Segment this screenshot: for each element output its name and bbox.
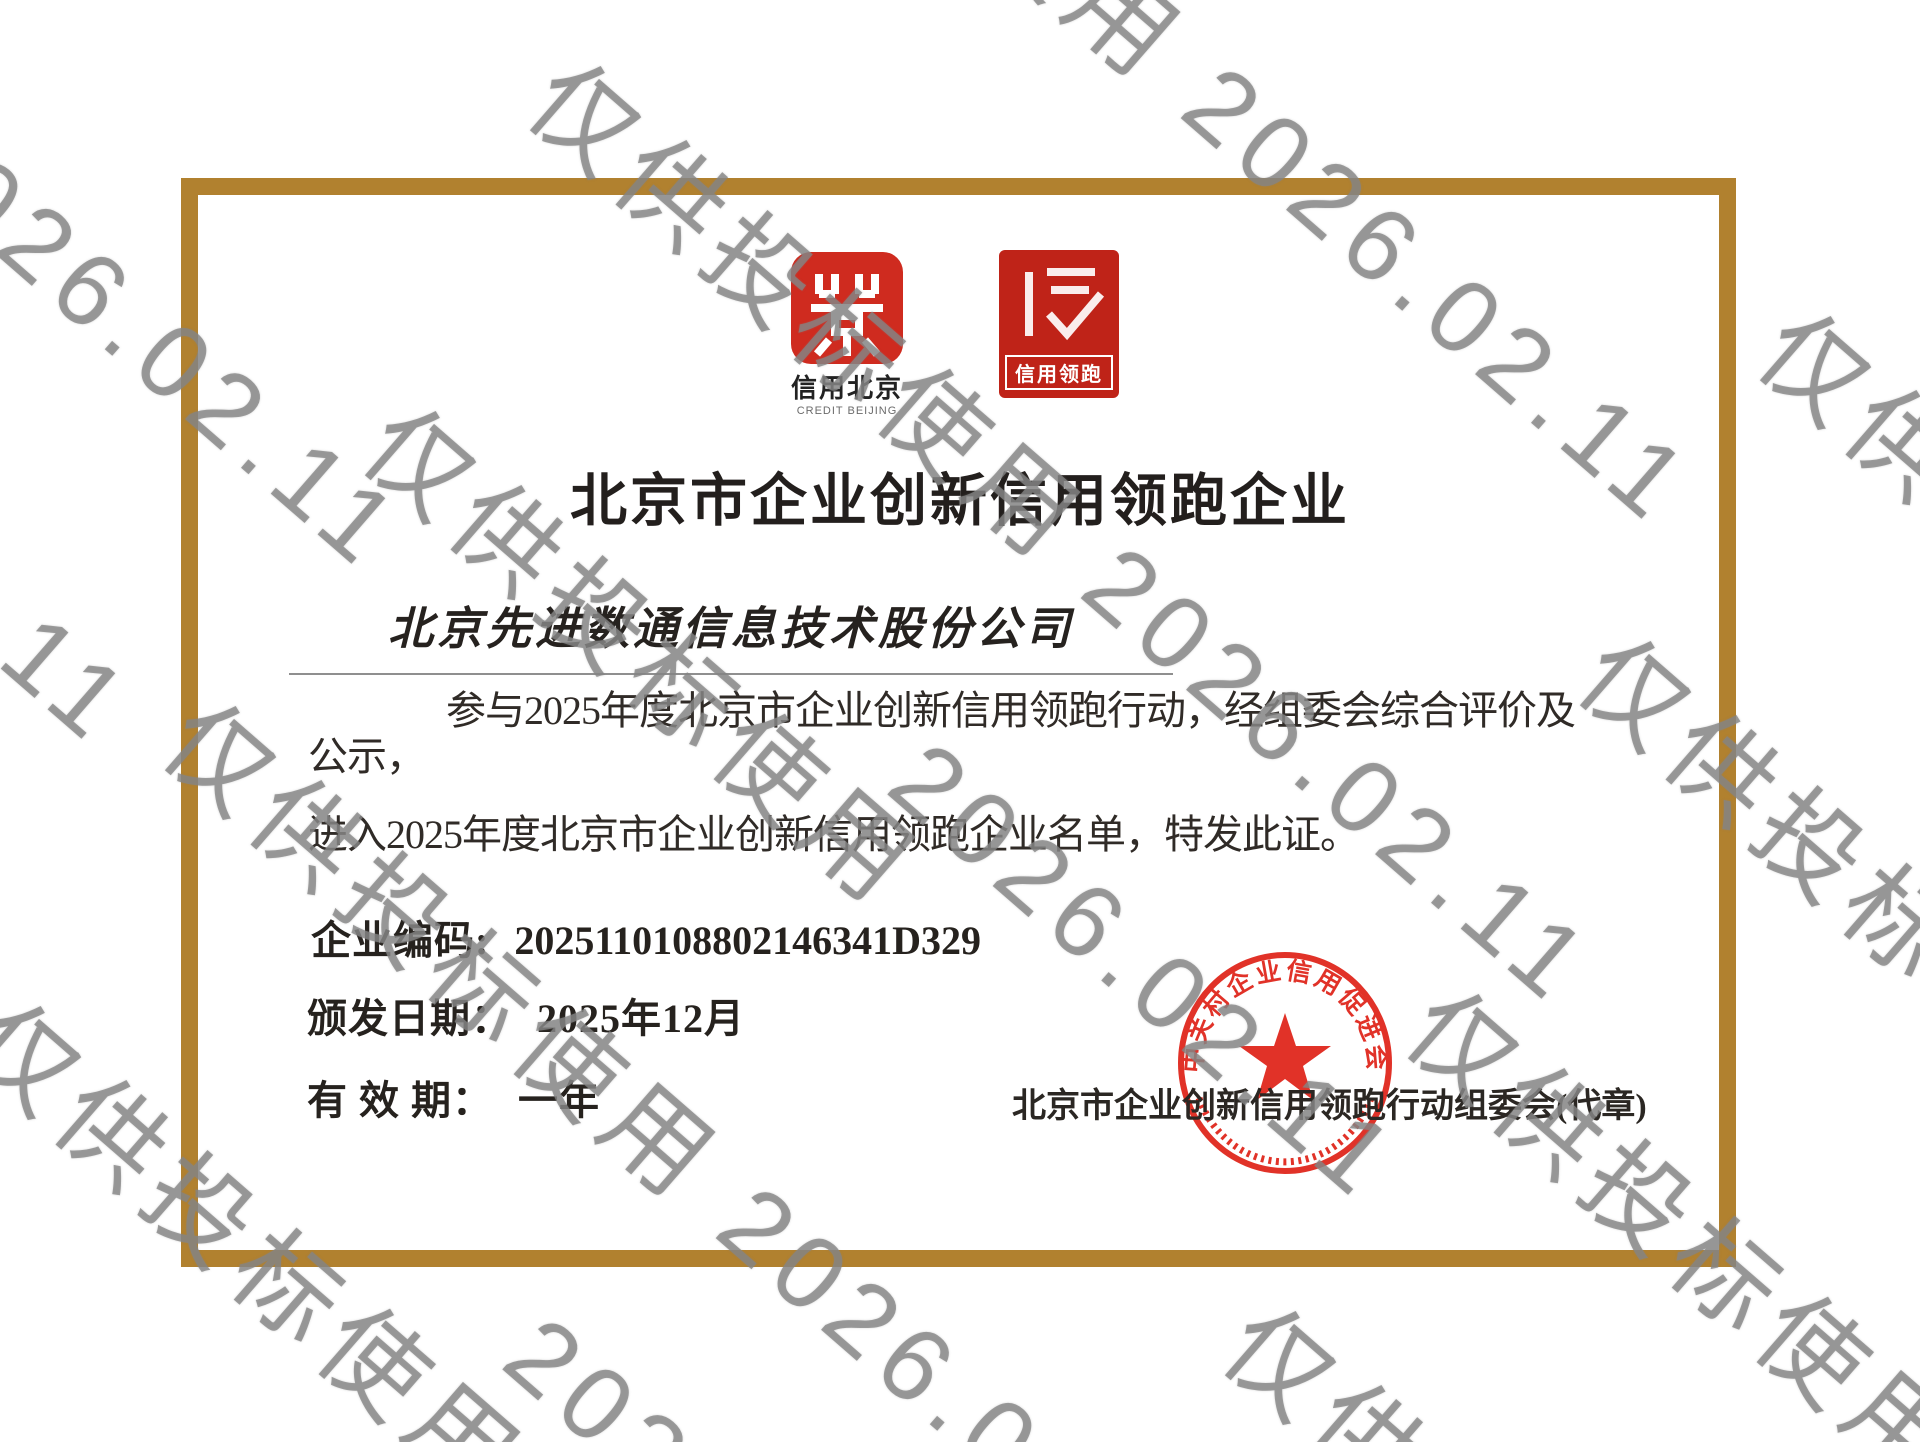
credit-leader-logo: 信用领跑 — [999, 250, 1119, 398]
enterprise-code-label: 企业编码: — [311, 918, 489, 963]
body-line-2: 进入2025年度北京市企业创新信用领跑企业名单，特发此证。 — [308, 812, 1608, 858]
certificate-page: 信用北京 CREDIT BEIJING 信用领跑 北京市企业创新信用领跑企业 北… — [0, 0, 1920, 1442]
company-name: 北京先进数通信息技术股份公司 — [388, 604, 1074, 654]
watermark-text: 仅供投标使用 2026.02.11 — [1196, 1265, 1920, 1442]
validity-row: 有 效 期： 一年 — [307, 1068, 600, 1126]
credit-beijing-logo: 信用北京 CREDIT BEIJING — [788, 252, 906, 417]
issue-date-label: 颁发日期： — [307, 996, 512, 1041]
issue-date-value: 2025年12月 — [537, 996, 745, 1041]
credit-beijing-mark-icon — [791, 252, 903, 364]
company-name-row: 北京先进数通信息技术股份公司 — [289, 592, 1173, 675]
enterprise-code-row: 企业编码: 2025110108802146341D329 — [311, 908, 981, 966]
credit-leader-label: 信用领跑 — [1005, 355, 1113, 390]
watermark-text: 仅供投标使用 2026.02.11 — [0, 0, 174, 773]
beijing-monogram-icon — [791, 252, 903, 364]
credit-leader-glyph-icon — [999, 258, 1119, 354]
credit-beijing-label: 信用北京 — [788, 368, 906, 405]
watermark-text: 仅供投标使用 2026.02.11 — [1731, 270, 1920, 1283]
validity-label: 有 效 期： — [307, 1078, 493, 1123]
stamp-seal: 中关村企业信用促进会 — [1173, 950, 1397, 1180]
certificate-title: 北京市企业创新信用领跑企业 — [200, 455, 1720, 537]
validity-value: 一年 — [518, 1078, 600, 1123]
credit-beijing-subtitle: CREDIT BEIJING — [788, 405, 906, 417]
issue-date-row: 颁发日期： 2025年12月 — [307, 986, 745, 1044]
committee-signature: 北京市企业创新信用领跑行动组委会(代章) — [1012, 1078, 1672, 1127]
enterprise-code-value: 2025110108802146341D329 — [514, 918, 981, 963]
body-line-1: 参与2025年度北京市企业创新信用领跑行动，经组委会综合评价及公示， — [308, 688, 1608, 780]
certificate-body: 参与2025年度北京市企业创新信用领跑行动，经组委会综合评价及公示， 进入202… — [308, 688, 1608, 858]
watermark-text: 2026.02.11 — [482, 1295, 1038, 1442]
